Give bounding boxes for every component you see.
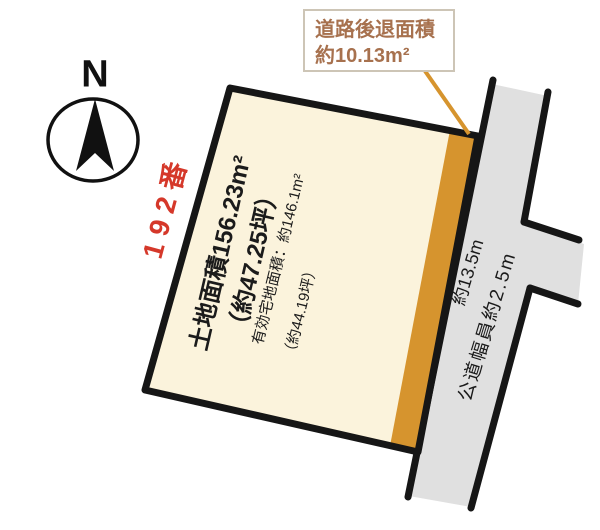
setback-callout-line1: 道路後退面積 [315,17,453,43]
setback-callout-box: 道路後退面積 約10.13m² [303,9,455,72]
land-plot-diagram: N 道路後退面積 約10.13m² 192番 土地面積156.23m² （約47… [0,0,600,530]
compass-north-label: N [81,54,108,97]
setback-callout-line2: 約10.13m² [315,43,453,69]
